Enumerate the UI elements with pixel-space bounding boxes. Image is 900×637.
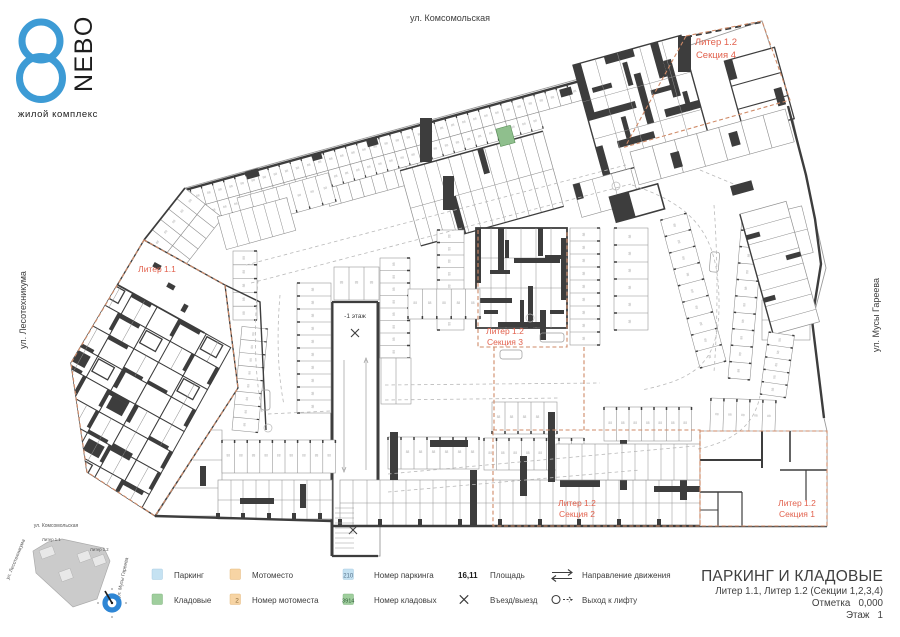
svg-text:Литер 1.1: Литер 1.1	[42, 537, 61, 542]
svg-text:88: 88	[419, 450, 423, 454]
svg-text:88: 88	[242, 284, 246, 288]
svg-text:88: 88	[244, 410, 248, 414]
svg-text:88: 88	[428, 301, 432, 305]
svg-text:2: 2	[235, 598, 239, 605]
svg-text:88: 88	[242, 297, 246, 301]
svg-text:88: 88	[227, 454, 231, 458]
svg-text:88: 88	[767, 414, 771, 418]
svg-text:Кладовые: Кладовые	[174, 596, 212, 605]
svg-text:88: 88	[311, 288, 315, 292]
svg-text:ул. Лесотехникума: ул. Лесотехникума	[18, 271, 28, 349]
svg-text:88: 88	[252, 454, 256, 458]
svg-text:88: 88	[247, 371, 251, 375]
svg-text:88: 88	[448, 247, 452, 251]
svg-text:88: 88	[302, 454, 306, 458]
svg-text:88: 88	[471, 450, 475, 454]
svg-text:3914: 3914	[342, 599, 354, 605]
svg-text:88: 88	[526, 451, 530, 455]
svg-text:88: 88	[510, 415, 514, 419]
svg-text:88: 88	[242, 256, 246, 260]
svg-text:88: 88	[392, 312, 396, 316]
svg-text:88: 88	[582, 246, 586, 250]
svg-text:88: 88	[311, 379, 315, 383]
svg-text:88: 88	[392, 275, 396, 279]
svg-text:88: 88	[290, 454, 294, 458]
svg-text:88: 88	[392, 300, 396, 304]
svg-text:88: 88	[582, 285, 586, 289]
svg-text:88: 88	[715, 412, 719, 416]
svg-text:88: 88	[327, 454, 331, 458]
svg-text:88: 88	[392, 325, 396, 329]
svg-text:88: 88	[513, 451, 517, 455]
svg-text:88: 88	[582, 272, 586, 276]
svg-text:88: 88	[628, 303, 632, 307]
svg-text:88: 88	[392, 262, 396, 266]
svg-text:Отметка 0,000: Отметка 0,000	[812, 598, 884, 609]
svg-text:Литер 1.1, Литер 1.2 (Секции 1: Литер 1.1, Литер 1.2 (Секции 1,2,3,4)	[715, 586, 883, 597]
svg-text:88: 88	[413, 301, 417, 305]
svg-text:88: 88	[392, 350, 396, 354]
svg-text:210: 210	[343, 574, 354, 580]
svg-text:88: 88	[745, 270, 749, 274]
svg-text:Номер паркинга: Номер паркинга	[374, 571, 434, 580]
svg-text:-1 этаж: -1 этаж	[344, 313, 366, 320]
svg-text:88: 88	[728, 413, 732, 417]
svg-text:88: 88	[582, 233, 586, 237]
svg-text:88: 88	[646, 421, 650, 425]
svg-text:88: 88	[392, 287, 396, 291]
svg-text:88: 88	[536, 415, 540, 419]
svg-text:88: 88	[582, 337, 586, 341]
svg-text:жилой комплекс: жилой комплекс	[18, 109, 98, 120]
svg-text:88: 88	[250, 345, 254, 349]
svg-text:Этаж 1: Этаж 1	[846, 610, 883, 621]
svg-text:Площадь: Площадь	[490, 571, 525, 580]
svg-text:Секция 3: Секция 3	[487, 337, 523, 347]
svg-text:88: 88	[739, 336, 743, 340]
svg-text:88: 88	[488, 451, 492, 455]
svg-text:88: 88	[737, 369, 741, 373]
svg-text:88: 88	[448, 272, 452, 276]
svg-text:88: 88	[311, 340, 315, 344]
svg-text:88: 88	[264, 454, 268, 458]
svg-text:88: 88	[538, 451, 542, 455]
svg-text:88: 88	[754, 414, 758, 418]
svg-text:88: 88	[457, 301, 461, 305]
svg-text:88: 88	[582, 311, 586, 315]
svg-text:88: 88	[242, 422, 246, 426]
svg-text:88: 88	[621, 421, 625, 425]
svg-text:88: 88	[311, 301, 315, 305]
svg-text:Направление движения: Направление движения	[582, 571, 671, 580]
svg-text:ул. Мусы Гареева: ул. Мусы Гареева	[871, 278, 881, 352]
svg-text:88: 88	[277, 454, 281, 458]
svg-text:88: 88	[311, 392, 315, 396]
svg-text:88: 88	[683, 421, 687, 425]
svg-text:88: 88	[355, 281, 359, 285]
svg-text:88: 88	[582, 324, 586, 328]
svg-text:Въезд/выезд: Въезд/выезд	[490, 596, 538, 605]
svg-text:88: 88	[658, 421, 662, 425]
svg-text:88: 88	[246, 384, 250, 388]
svg-text:88: 88	[671, 421, 675, 425]
svg-text:88: 88	[311, 366, 315, 370]
svg-text:88: 88	[471, 301, 475, 305]
svg-text:88: 88	[311, 327, 315, 331]
svg-text:Выход к лифту: Выход к лифту	[582, 596, 637, 605]
svg-text:88: 88	[311, 314, 315, 318]
svg-text:Литер 1.1: Литер 1.1	[138, 264, 176, 274]
svg-text:88: 88	[311, 353, 315, 357]
svg-text:88: 88	[458, 450, 462, 454]
svg-text:88: 88	[311, 405, 315, 409]
svg-text:88: 88	[245, 397, 249, 401]
svg-text:88: 88	[251, 332, 255, 336]
svg-text:88: 88	[582, 298, 586, 302]
svg-text:88: 88	[741, 413, 745, 417]
svg-text:Литер 1.2: Литер 1.2	[778, 498, 816, 508]
svg-text:88: 88	[608, 421, 612, 425]
svg-text:Литер 1.2: Литер 1.2	[695, 37, 737, 48]
svg-text:88: 88	[738, 352, 742, 356]
svg-text:88: 88	[445, 450, 449, 454]
svg-text:88: 88	[432, 450, 436, 454]
svg-text:Секция 1: Секция 1	[779, 509, 815, 519]
svg-text:ул. Комсомольская: ул. Комсомольская	[410, 13, 490, 23]
svg-text:Секция 2: Секция 2	[559, 509, 595, 519]
svg-text:88: 88	[340, 281, 344, 285]
svg-text:88: 88	[442, 301, 446, 305]
svg-text:88: 88	[628, 235, 632, 239]
svg-text:88: 88	[523, 415, 527, 419]
svg-text:88: 88	[448, 234, 452, 238]
svg-text:88: 88	[628, 286, 632, 290]
svg-text:88: 88	[392, 337, 396, 341]
svg-text:88: 88	[406, 450, 410, 454]
svg-text:88: 88	[448, 322, 452, 326]
svg-text:88: 88	[628, 252, 632, 256]
svg-text:88: 88	[628, 269, 632, 273]
svg-text:Литер 1.2: Литер 1.2	[558, 498, 596, 508]
svg-text:88: 88	[628, 320, 632, 324]
svg-text:88: 88	[249, 358, 253, 362]
svg-text:Паркинг: Паркинг	[174, 571, 204, 580]
svg-text:Мотоместо: Мотоместо	[252, 571, 294, 580]
svg-text:16,11: 16,11	[458, 571, 478, 580]
svg-text:ул. Комсомольская: ул. Комсомольская	[34, 523, 79, 529]
svg-text:88: 88	[242, 311, 246, 315]
svg-text:88: 88	[448, 259, 452, 263]
svg-text:Номер кладовых: Номер кладовых	[374, 596, 437, 605]
svg-text:88: 88	[315, 454, 319, 458]
svg-text:88: 88	[744, 286, 748, 290]
svg-text:88: 88	[582, 259, 586, 263]
svg-text:88: 88	[742, 303, 746, 307]
svg-text:88: 88	[497, 415, 501, 419]
svg-text:88: 88	[633, 421, 637, 425]
svg-text:88: 88	[741, 319, 745, 323]
svg-text:NEBO: NEBO	[70, 15, 98, 92]
svg-text:Литер 1.2: Литер 1.2	[90, 547, 109, 552]
svg-text:88: 88	[448, 284, 452, 288]
svg-text:88: 88	[501, 451, 505, 455]
svg-text:Номер мотоместа: Номер мотоместа	[252, 596, 319, 605]
svg-text:ПАРКИНГ И КЛАДОВЫЕ: ПАРКИНГ И КЛАДОВЫЕ	[701, 568, 883, 585]
svg-text:Секция 4: Секция 4	[696, 50, 736, 61]
svg-text:88: 88	[370, 281, 374, 285]
svg-text:Литер 1.2: Литер 1.2	[486, 326, 524, 336]
svg-text:88: 88	[239, 454, 243, 458]
svg-text:88: 88	[242, 270, 246, 274]
